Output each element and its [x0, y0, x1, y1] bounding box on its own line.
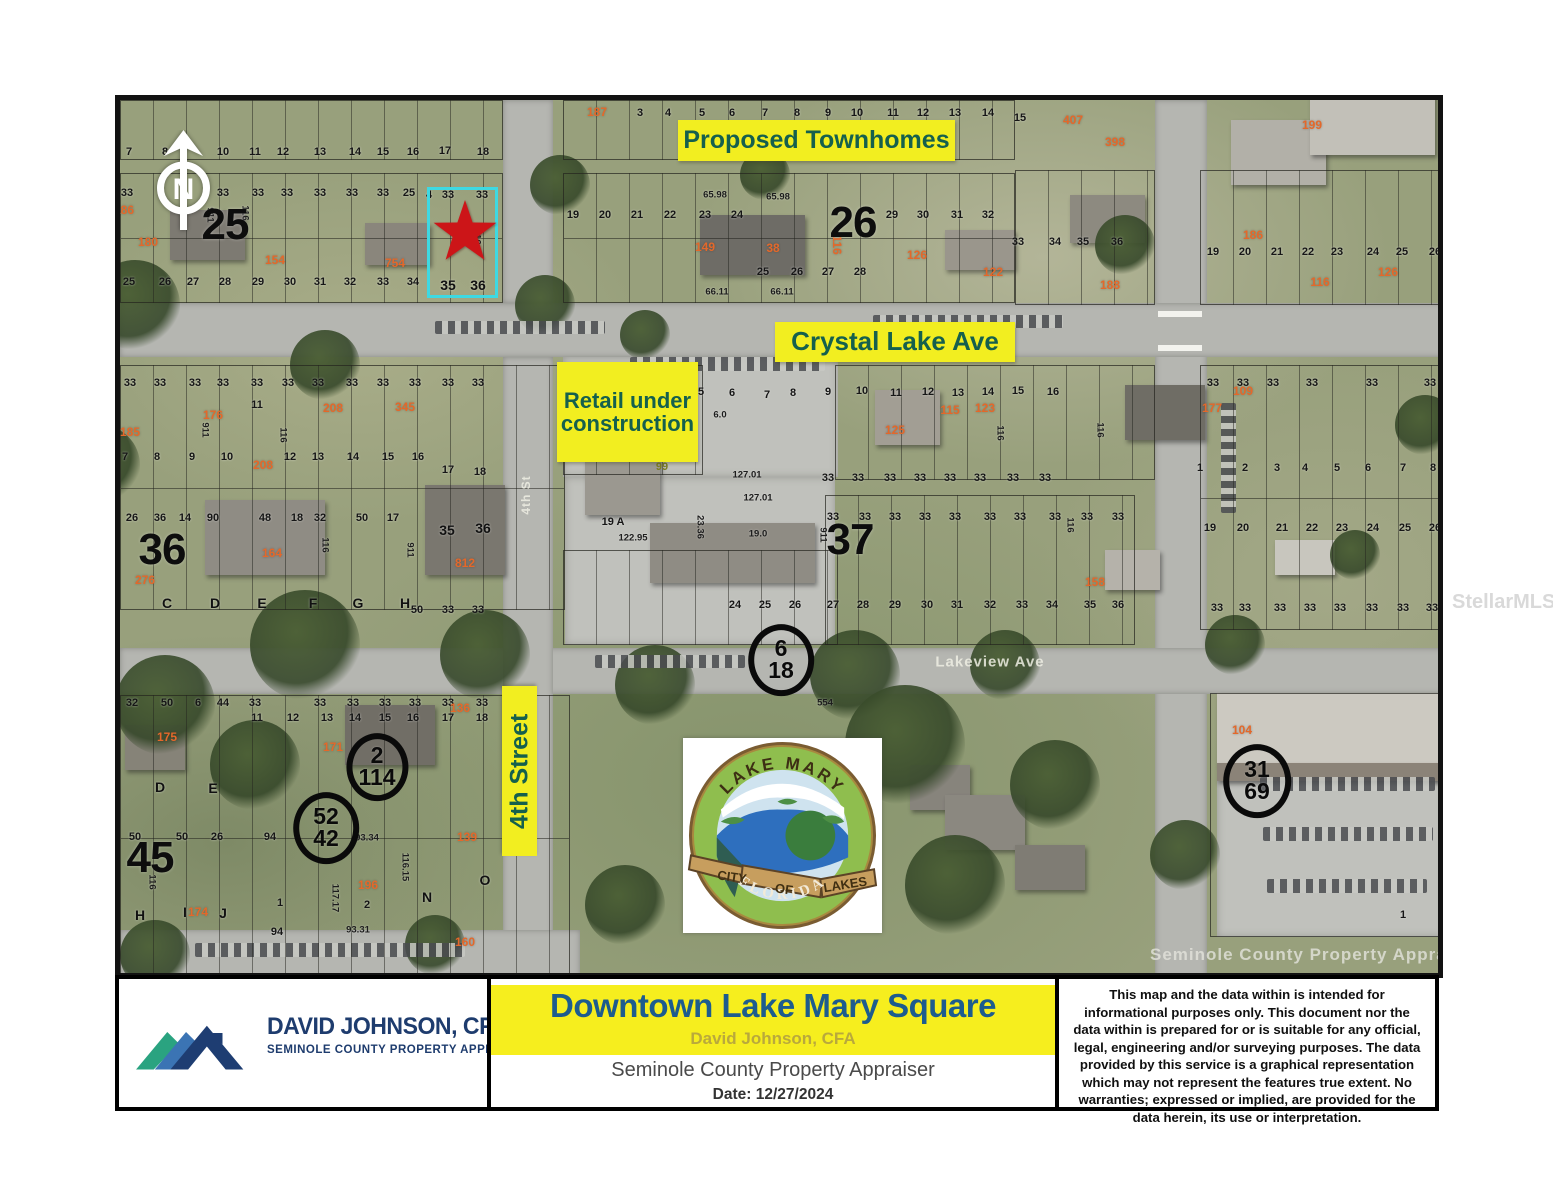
- parcel-number: 33: [974, 472, 986, 484]
- parcel-number: 27: [187, 276, 199, 288]
- parcel-number: 9: [825, 386, 831, 398]
- parcel-number: 33: [476, 697, 488, 709]
- parcel-number: 35: [439, 522, 455, 538]
- address-number: 125: [885, 423, 905, 437]
- parcel-number: 99: [656, 461, 668, 473]
- parcel-number: 1: [277, 897, 283, 909]
- parcel-number: 36: [1111, 236, 1123, 248]
- parcel-number: 25: [757, 266, 769, 278]
- parcel-number: 28: [854, 266, 866, 278]
- map-title: Downtown Lake Mary Square: [491, 987, 1055, 1025]
- parcel-number: 33: [1267, 377, 1279, 389]
- parcel-number: 36: [475, 520, 491, 536]
- parcel-number: 32: [344, 276, 356, 288]
- parcel-number: 8: [790, 387, 796, 399]
- parcel-number: 27: [822, 266, 834, 278]
- parcel-number: 14: [347, 451, 359, 463]
- map-panel: 7810111213141516171833333333333333254333…: [115, 95, 1443, 978]
- parked-cars: [435, 321, 605, 334]
- crosswalk: [1158, 311, 1202, 317]
- parcel-number: 33: [472, 377, 484, 389]
- parcel-number: 18: [474, 466, 486, 478]
- label-proposed-townhomes: Proposed Townhomes: [678, 120, 955, 161]
- parcel-number: 22: [664, 209, 676, 221]
- parcel-number: 11: [251, 399, 263, 411]
- parcel-number: 8: [1430, 462, 1436, 474]
- parcel-number: 17: [442, 464, 454, 476]
- parcel-number: 33: [409, 377, 421, 389]
- title-box: Downtown Lake Mary Square David Johnson,…: [487, 975, 1059, 1111]
- parcel-number: 15: [377, 146, 389, 158]
- parcel-number: 33: [252, 187, 264, 199]
- parcel-number: 25: [403, 187, 415, 199]
- parcel-number: 33: [282, 377, 294, 389]
- parcel-number: 29: [252, 276, 264, 288]
- parcel-number: 33: [281, 187, 293, 199]
- lake-mary-seal: LAKE MARY FLORIDA CITY OF LAKES: [683, 738, 882, 933]
- parcel-number: 33: [154, 377, 166, 389]
- parcel-number: 22: [1302, 246, 1314, 258]
- dimension-label: 116: [320, 537, 331, 552]
- parcel-number: 25: [759, 599, 771, 611]
- parcel-number: H: [400, 595, 410, 611]
- parcel-number: 33: [884, 472, 896, 484]
- parcel-number: 50: [356, 512, 368, 524]
- dimension-label: 116: [1065, 517, 1076, 532]
- footer-bar: DAVID JOHNSON, CFA SEMINOLE COUNTY PROPE…: [115, 975, 1443, 1111]
- dimension-label: 911: [405, 542, 416, 557]
- dimension-label: 65.98: [703, 190, 727, 201]
- parcel-number: 13: [312, 451, 324, 463]
- callout-numbers: 618: [768, 638, 794, 682]
- parcel-number: 32: [984, 599, 996, 611]
- parcel-number: 27: [827, 599, 839, 611]
- parcel-number: 33: [1207, 377, 1219, 389]
- parcel-number: 7: [762, 107, 768, 119]
- appraiser-logo-box: DAVID JOHNSON, CFA SEMINOLE COUNTY PROPE…: [115, 975, 491, 1111]
- parcel-number: 11: [890, 387, 902, 399]
- block-number-37: 37: [827, 515, 874, 565]
- parcel-number: 36: [1112, 599, 1124, 611]
- parcel-number: 20: [599, 209, 611, 221]
- address-number: 196: [358, 878, 378, 892]
- parcel-number: 10: [217, 146, 229, 158]
- label-retail-under-construction: Retail under construction: [557, 362, 698, 462]
- parcel-number: 9: [189, 451, 195, 463]
- parcel-number: 25: [1396, 246, 1408, 258]
- parcel-number: D: [210, 595, 220, 611]
- appraiser-logo-icon: [135, 1005, 260, 1087]
- parcel-number: 34: [1046, 599, 1058, 611]
- tree: [620, 310, 670, 360]
- parcel-number: 12: [277, 146, 289, 158]
- parcel-number: 33: [442, 377, 454, 389]
- callout-numbers: 2114: [358, 745, 395, 789]
- parcel-number: 33: [347, 697, 359, 709]
- parcel-number: 31: [951, 599, 963, 611]
- address-number: 208: [323, 401, 343, 415]
- parcel-number: 33: [442, 604, 454, 616]
- address-number: 158: [1085, 575, 1105, 589]
- dimension-label: 23.36: [695, 515, 706, 539]
- parcel-number: 14: [179, 512, 191, 524]
- address-number: 123: [975, 401, 995, 415]
- address-number: 116: [1310, 275, 1329, 289]
- parcel-number: 31: [314, 276, 326, 288]
- parcel-number: 33: [889, 511, 901, 523]
- parcel-number: 6: [729, 107, 735, 119]
- parcel-number: 33: [346, 377, 358, 389]
- parcel-number: 3: [637, 107, 643, 119]
- parcel-number: 26: [126, 512, 138, 524]
- map-watermark: Seminole County Property Appraiser: [1150, 945, 1443, 965]
- disclaimer-text: This map and the data within is intended…: [1059, 979, 1435, 1107]
- parcel-number: 24: [1367, 246, 1379, 258]
- parcel-number: N: [422, 889, 432, 905]
- parcel-number: I: [183, 904, 187, 920]
- subject-star-icon: [430, 200, 500, 266]
- map-date: Date: 12/27/2024: [491, 1086, 1055, 1104]
- parcel-grid: [835, 365, 1155, 480]
- parcel-number: 17: [439, 145, 451, 157]
- parcel-number: 12: [922, 386, 934, 398]
- parcel-number: 5: [1334, 462, 1340, 474]
- parcel-number: 19: [1207, 246, 1219, 258]
- address-number: 38: [766, 241, 779, 255]
- dimension-label: 66.11: [770, 287, 793, 298]
- dimension-label: 65.98: [766, 192, 790, 203]
- parcel-number: 19: [1204, 522, 1216, 534]
- parcel-number: 12: [287, 712, 299, 724]
- parcel-number: 34: [1049, 236, 1061, 248]
- parcel-number: 26: [1429, 246, 1441, 258]
- parcel-number: 90: [207, 512, 219, 524]
- parcel-number: 1: [1197, 462, 1203, 474]
- parcel-number: 33: [346, 187, 358, 199]
- appraiser-office: SEMINOLE COUNTY PROPERTY APPRAISER: [267, 1044, 482, 1056]
- parcel-number: 7: [122, 451, 128, 463]
- parcel-number: 21: [631, 209, 643, 221]
- parcel-number: 33: [1397, 602, 1409, 614]
- parcel-number: 8: [154, 451, 160, 463]
- parcel-number: 32: [314, 512, 326, 524]
- parcel-number: 24: [1367, 522, 1379, 534]
- address-number: 187: [587, 105, 607, 119]
- parcel-number: D: [155, 779, 165, 795]
- parcel-number: 33: [189, 377, 201, 389]
- parcel-number: 28: [219, 276, 231, 288]
- parcel-number: 33: [217, 377, 229, 389]
- block-number-45: 45: [127, 833, 174, 883]
- parcel-number: 12: [917, 107, 929, 119]
- parcel-number: 32: [982, 209, 994, 221]
- address-number: 186: [115, 203, 134, 217]
- address-number: 109: [1233, 384, 1253, 398]
- parcel-number: 2: [1242, 462, 1248, 474]
- building: [1310, 95, 1435, 155]
- parcel-number: 16: [407, 712, 419, 724]
- parcel-number: O: [480, 872, 491, 888]
- parcel-number: 33: [944, 472, 956, 484]
- parcel-number: 25: [1399, 522, 1411, 534]
- street-name: Lakeview Ave: [935, 654, 1044, 671]
- parcel-number: 33: [217, 187, 229, 199]
- parcel-number: 10: [856, 385, 868, 397]
- parcel-number: 6: [729, 387, 735, 399]
- map-byline: David Johnson, CFA: [491, 1029, 1055, 1049]
- dimension-label: 911: [200, 422, 211, 437]
- block-number-26: 26: [830, 198, 877, 248]
- parcel-number: 16: [407, 146, 419, 158]
- dimension-label: 127.01: [732, 470, 761, 481]
- dimension-label: 93.31: [346, 925, 370, 936]
- parcel-number: 23: [1331, 246, 1343, 258]
- label-fourth-street: 4th Street: [502, 686, 537, 856]
- parcel-number: 7: [1400, 462, 1406, 474]
- parcel-number: 9: [825, 107, 831, 119]
- dimension-label: 116: [278, 427, 289, 442]
- address-number: 164: [262, 546, 282, 560]
- address-number: 126: [907, 248, 927, 262]
- parcel-number: 24: [731, 209, 743, 221]
- parcel-number: 20: [1237, 522, 1249, 534]
- address-number: 160: [455, 935, 475, 949]
- parcel-number: 33: [1012, 236, 1024, 248]
- parcel-number: 19 A: [602, 516, 625, 528]
- address-number: 812: [455, 556, 475, 570]
- crosswalk: [1158, 345, 1202, 351]
- parcel-number: 28: [857, 599, 869, 611]
- parcel-number: E: [208, 780, 217, 796]
- parcel-number: 33: [1049, 511, 1061, 523]
- callout-numbers: 3169: [1244, 759, 1270, 803]
- parcel-number: 30: [921, 599, 933, 611]
- parcel-number: 33: [1334, 602, 1346, 614]
- parcel-number: 5: [699, 107, 705, 119]
- dimension-label: 66.11: [705, 287, 728, 298]
- parcel-number: 4: [1302, 462, 1308, 474]
- parcel-number: 14: [982, 107, 994, 119]
- parcel-number: 12: [284, 451, 296, 463]
- parcel-number: 13: [321, 712, 333, 724]
- parcel-number: 33: [1424, 377, 1436, 389]
- parcel-number: 26: [159, 276, 171, 288]
- address-number: 126: [1378, 265, 1398, 279]
- parcel-number: 33: [1366, 602, 1378, 614]
- parcel-number: 15: [1012, 385, 1024, 397]
- parcel-number: 33: [852, 472, 864, 484]
- parcel-number: 10: [851, 107, 863, 119]
- callout-numbers: 5242: [313, 806, 339, 850]
- parcel-number: 33: [1306, 377, 1318, 389]
- parcel-number: 26: [1429, 522, 1441, 534]
- parcel-number: 33: [1016, 599, 1028, 611]
- compass-n-label: N: [173, 173, 195, 206]
- parcel-number: 33: [822, 472, 834, 484]
- dimension-label: 116.15: [400, 853, 411, 882]
- parcel-number: 33: [251, 377, 263, 389]
- parcel-number: 22: [1306, 522, 1318, 534]
- address-number: 104: [1232, 723, 1252, 737]
- parcel-number: 33: [919, 511, 931, 523]
- parcel-number: 15: [379, 712, 391, 724]
- parcel-number: 26: [791, 266, 803, 278]
- parcel-number: 94: [271, 926, 283, 938]
- parcel-number: 33: [1014, 511, 1026, 523]
- dimension-label: 19.0: [749, 529, 768, 540]
- parcel-number: 7: [764, 389, 770, 401]
- parcel-number: 32: [126, 697, 138, 709]
- parcel-number: 13: [314, 146, 326, 158]
- building: [1015, 845, 1085, 890]
- address-number: 177: [1202, 401, 1222, 415]
- parcel-number: 26: [211, 831, 223, 843]
- street-name: 4th St: [519, 475, 533, 514]
- address-number: 122: [983, 265, 1003, 279]
- parcel-number: 33: [121, 187, 133, 199]
- parcel-number: 4: [665, 107, 671, 119]
- parcel-number: 16: [1047, 386, 1059, 398]
- parcel-number: 29: [886, 209, 898, 221]
- circled-callout-2-114: 2114: [358, 745, 395, 789]
- parcel-number: 33: [249, 697, 261, 709]
- parcel-number: 7: [126, 146, 132, 158]
- parcel-number: 33: [1366, 377, 1378, 389]
- parcel-number: 33: [124, 377, 136, 389]
- parcel-number: H: [135, 907, 145, 923]
- parcel-number: 18: [291, 512, 303, 524]
- address-number: 175: [157, 730, 177, 744]
- parcel-number: 33: [377, 187, 389, 199]
- parcel-number: J: [219, 905, 227, 921]
- parcel-number: 33: [377, 377, 389, 389]
- dimension-label: 122.95: [618, 533, 647, 544]
- dimension-label: 93.34: [355, 833, 379, 844]
- circled-callout-6-18: 618: [768, 638, 794, 682]
- parcel-number: 3: [1274, 462, 1280, 474]
- address-number: 171: [323, 740, 343, 754]
- parcel-number: 24: [729, 599, 741, 611]
- parcel-number: 19: [567, 209, 579, 221]
- parcel-number: 13: [952, 387, 964, 399]
- parcel-number: 18: [476, 712, 488, 724]
- parcel-number: 34: [407, 276, 419, 288]
- address-number: 199: [1302, 118, 1322, 132]
- parcel-number: 16: [412, 451, 424, 463]
- address-number: 407: [1063, 113, 1083, 127]
- parcel-number: 35: [1084, 599, 1096, 611]
- parcel-number: 33: [1274, 602, 1286, 614]
- parcel-number: 21: [1271, 246, 1283, 258]
- seal-banner-of: OF: [774, 880, 794, 897]
- parcel-number: 33: [1007, 472, 1019, 484]
- circled-callout-52-42: 5242: [313, 806, 339, 850]
- dimension-label: 117.17: [330, 884, 341, 913]
- appraiser-name: DAVID JOHNSON, CFA: [267, 1013, 473, 1041]
- parcel-number: 94: [264, 831, 276, 843]
- label-crystal-lake-ave: Crystal Lake Ave: [775, 322, 1015, 362]
- parcel-number: 6: [195, 697, 201, 709]
- parcel-number: 23: [1336, 522, 1348, 534]
- disclaimer-box: This map and the data within is intended…: [1055, 975, 1439, 1111]
- dimension-label: 116: [1095, 422, 1106, 437]
- address-number: 149: [695, 240, 715, 254]
- parcel-number: 33: [1239, 602, 1251, 614]
- parcel-number: 33: [1304, 602, 1316, 614]
- tree: [1010, 740, 1100, 830]
- parcel-number: 8: [794, 107, 800, 119]
- parcel-number: 33: [949, 511, 961, 523]
- parcel-number: 14: [349, 146, 361, 158]
- parcel-number: 17: [387, 512, 399, 524]
- parcel-number: 33: [379, 697, 391, 709]
- parcel-grid: [1200, 365, 1443, 630]
- parcel-number: 5: [698, 386, 704, 398]
- address-number: 398: [1105, 135, 1125, 149]
- parcel-number: 6: [1365, 462, 1371, 474]
- address-number: 174: [188, 905, 208, 919]
- parcel-number: F: [309, 595, 318, 611]
- address-number: 185: [120, 425, 140, 439]
- parcel-number: 15: [1014, 112, 1026, 124]
- parcel-number: 15: [382, 451, 394, 463]
- address-number: 208: [253, 458, 273, 472]
- dimension-label: 127.01: [743, 493, 772, 504]
- parcel-number: G: [353, 595, 364, 611]
- parcel-number: 25: [123, 276, 135, 288]
- parked-cars: [595, 655, 745, 668]
- parcel-number: 44: [217, 697, 229, 709]
- address-number: 276: [135, 573, 155, 587]
- page: 7810111213141516171833333333333333254333…: [0, 0, 1553, 1200]
- parcel-number: 33: [1426, 602, 1438, 614]
- tree: [585, 865, 665, 945]
- parcel-number: 11: [251, 712, 263, 724]
- address-number: 754: [385, 256, 405, 270]
- parcel-number: 23: [699, 209, 711, 221]
- dimension-label: 554: [817, 698, 833, 709]
- circled-callout-31-69: 3169: [1244, 759, 1270, 803]
- dimension-label: 116: [995, 425, 1006, 440]
- address-number: 186: [1243, 228, 1263, 242]
- parcel-number: 10: [221, 451, 233, 463]
- map-agency: Seminole County Property Appraiser: [491, 1059, 1055, 1082]
- dimension-label: 6.0: [713, 410, 726, 421]
- parcel-number: 11: [249, 146, 261, 158]
- parcel-number: 33: [1211, 602, 1223, 614]
- address-number: 345: [395, 400, 415, 414]
- parcel-number: 33: [984, 511, 996, 523]
- parcel-number: 29: [889, 599, 901, 611]
- parcel-number: 33: [472, 604, 484, 616]
- block-number-36: 36: [139, 525, 186, 575]
- parcel-number: 50: [176, 831, 188, 843]
- parcel-number: 2: [364, 899, 370, 911]
- parcel-number: 21: [1276, 522, 1288, 534]
- parcel-number: 50: [161, 697, 173, 709]
- parcel-number: 18: [477, 146, 489, 158]
- parcel-number: 33: [914, 472, 926, 484]
- parcel-number: 30: [284, 276, 296, 288]
- parcel-number: 33: [314, 187, 326, 199]
- tree: [905, 835, 1005, 935]
- parcel-number: 33: [1039, 472, 1051, 484]
- parcel-number: 14: [349, 712, 361, 724]
- north-arrow-icon: N: [150, 130, 216, 236]
- parcel-number: 50: [411, 604, 423, 616]
- parcel-number: 33: [1112, 511, 1124, 523]
- parcel-number: 31: [951, 209, 963, 221]
